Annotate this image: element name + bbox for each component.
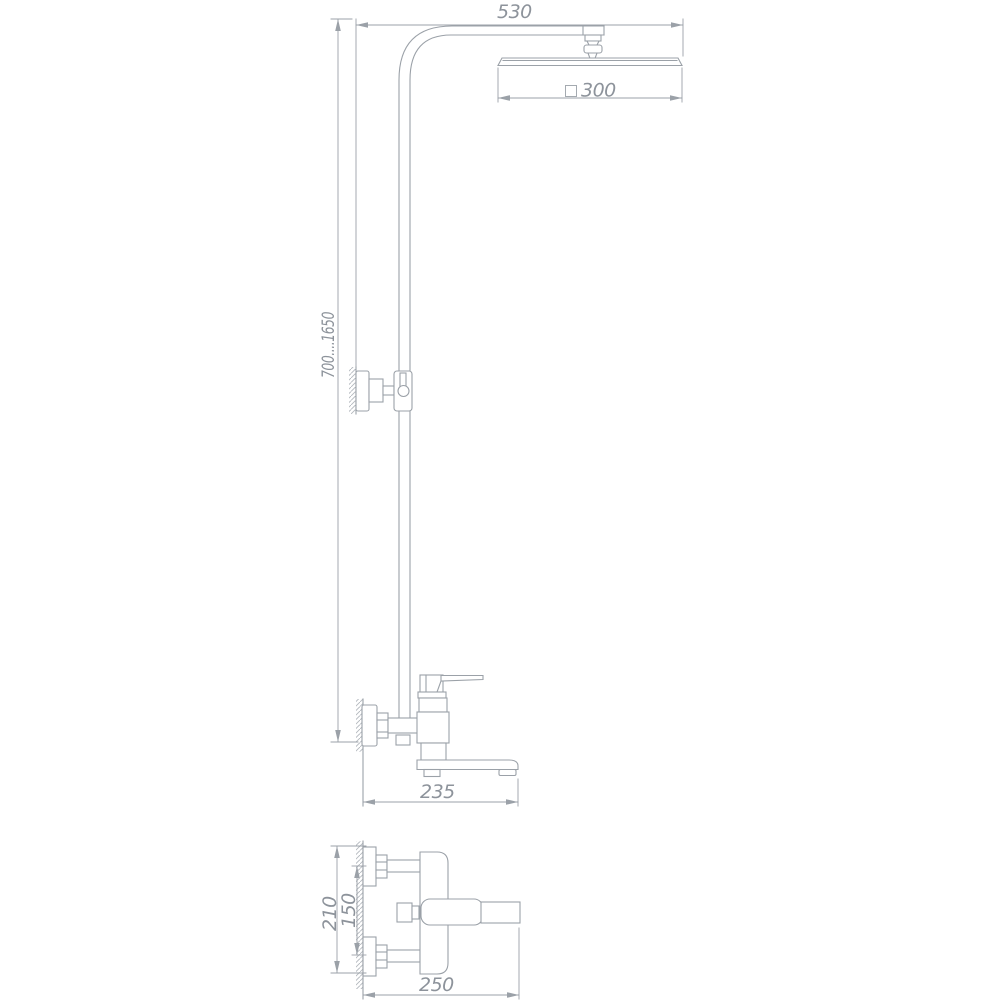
dimension-label-235: 235 [420, 781, 455, 803]
technical-drawing: 530 700....1650 300 235 210 150 [0, 0, 1000, 1000]
wall-hatch [349, 367, 356, 414]
wall-flange [362, 705, 377, 746]
dimension-label-height-range: 700....1650 [319, 312, 339, 378]
diverter-knob [397, 903, 412, 922]
connector-ball [584, 45, 602, 53]
handle-lever [441, 676, 483, 682]
body-lower [421, 743, 446, 760]
diverter-stem [412, 906, 419, 919]
spout-aerator [499, 770, 516, 776]
eccentric-nut [377, 713, 388, 738]
spout-stub [424, 770, 440, 777]
spout [417, 760, 518, 770]
dimension-label-300: 300 [581, 80, 616, 102]
drawing-canvas: 530 700....1650 300 235 210 150 [0, 0, 1000, 1000]
square-symbol [566, 86, 577, 97]
dimension-arm-reach: 530 [356, 1, 683, 367]
dimension-label-530: 530 [497, 1, 532, 23]
handle-grip-front [481, 902, 520, 923]
pipe-collar [396, 735, 410, 745]
cartridge-collar [418, 692, 446, 698]
riser-pipe [399, 26, 604, 720]
bottom-eccentric-nut [376, 945, 387, 968]
bracket-cylinder [369, 379, 383, 402]
top-eccentric-nut [376, 855, 387, 878]
bracket-escutcheon [356, 371, 369, 411]
dimension-label-250: 250 [419, 974, 454, 996]
top-flange [363, 847, 376, 886]
bracket-stem [383, 386, 394, 395]
dimension-label-150: 150 [338, 893, 360, 928]
top-pipe [387, 860, 420, 872]
connector-pipe [388, 718, 418, 733]
bottom-flange [363, 937, 376, 976]
cartridge-ring [419, 698, 447, 712]
bottom-pipe [387, 950, 420, 962]
handle-hub-front [421, 899, 483, 925]
head-profile [498, 58, 682, 66]
dimension-head-size: 300 [498, 68, 682, 102]
head-connector [584, 35, 602, 59]
connector-taper [587, 41, 599, 45]
riser-outer-line [399, 26, 604, 720]
slider-bracket [349, 367, 412, 414]
mixer-body [417, 712, 449, 743]
slider-knob [398, 386, 409, 397]
riser-inner-line [410, 35, 604, 720]
connector-collar [585, 35, 601, 41]
rain-shower-head [498, 58, 682, 66]
dimension-spout-length: 235 [363, 779, 518, 806]
